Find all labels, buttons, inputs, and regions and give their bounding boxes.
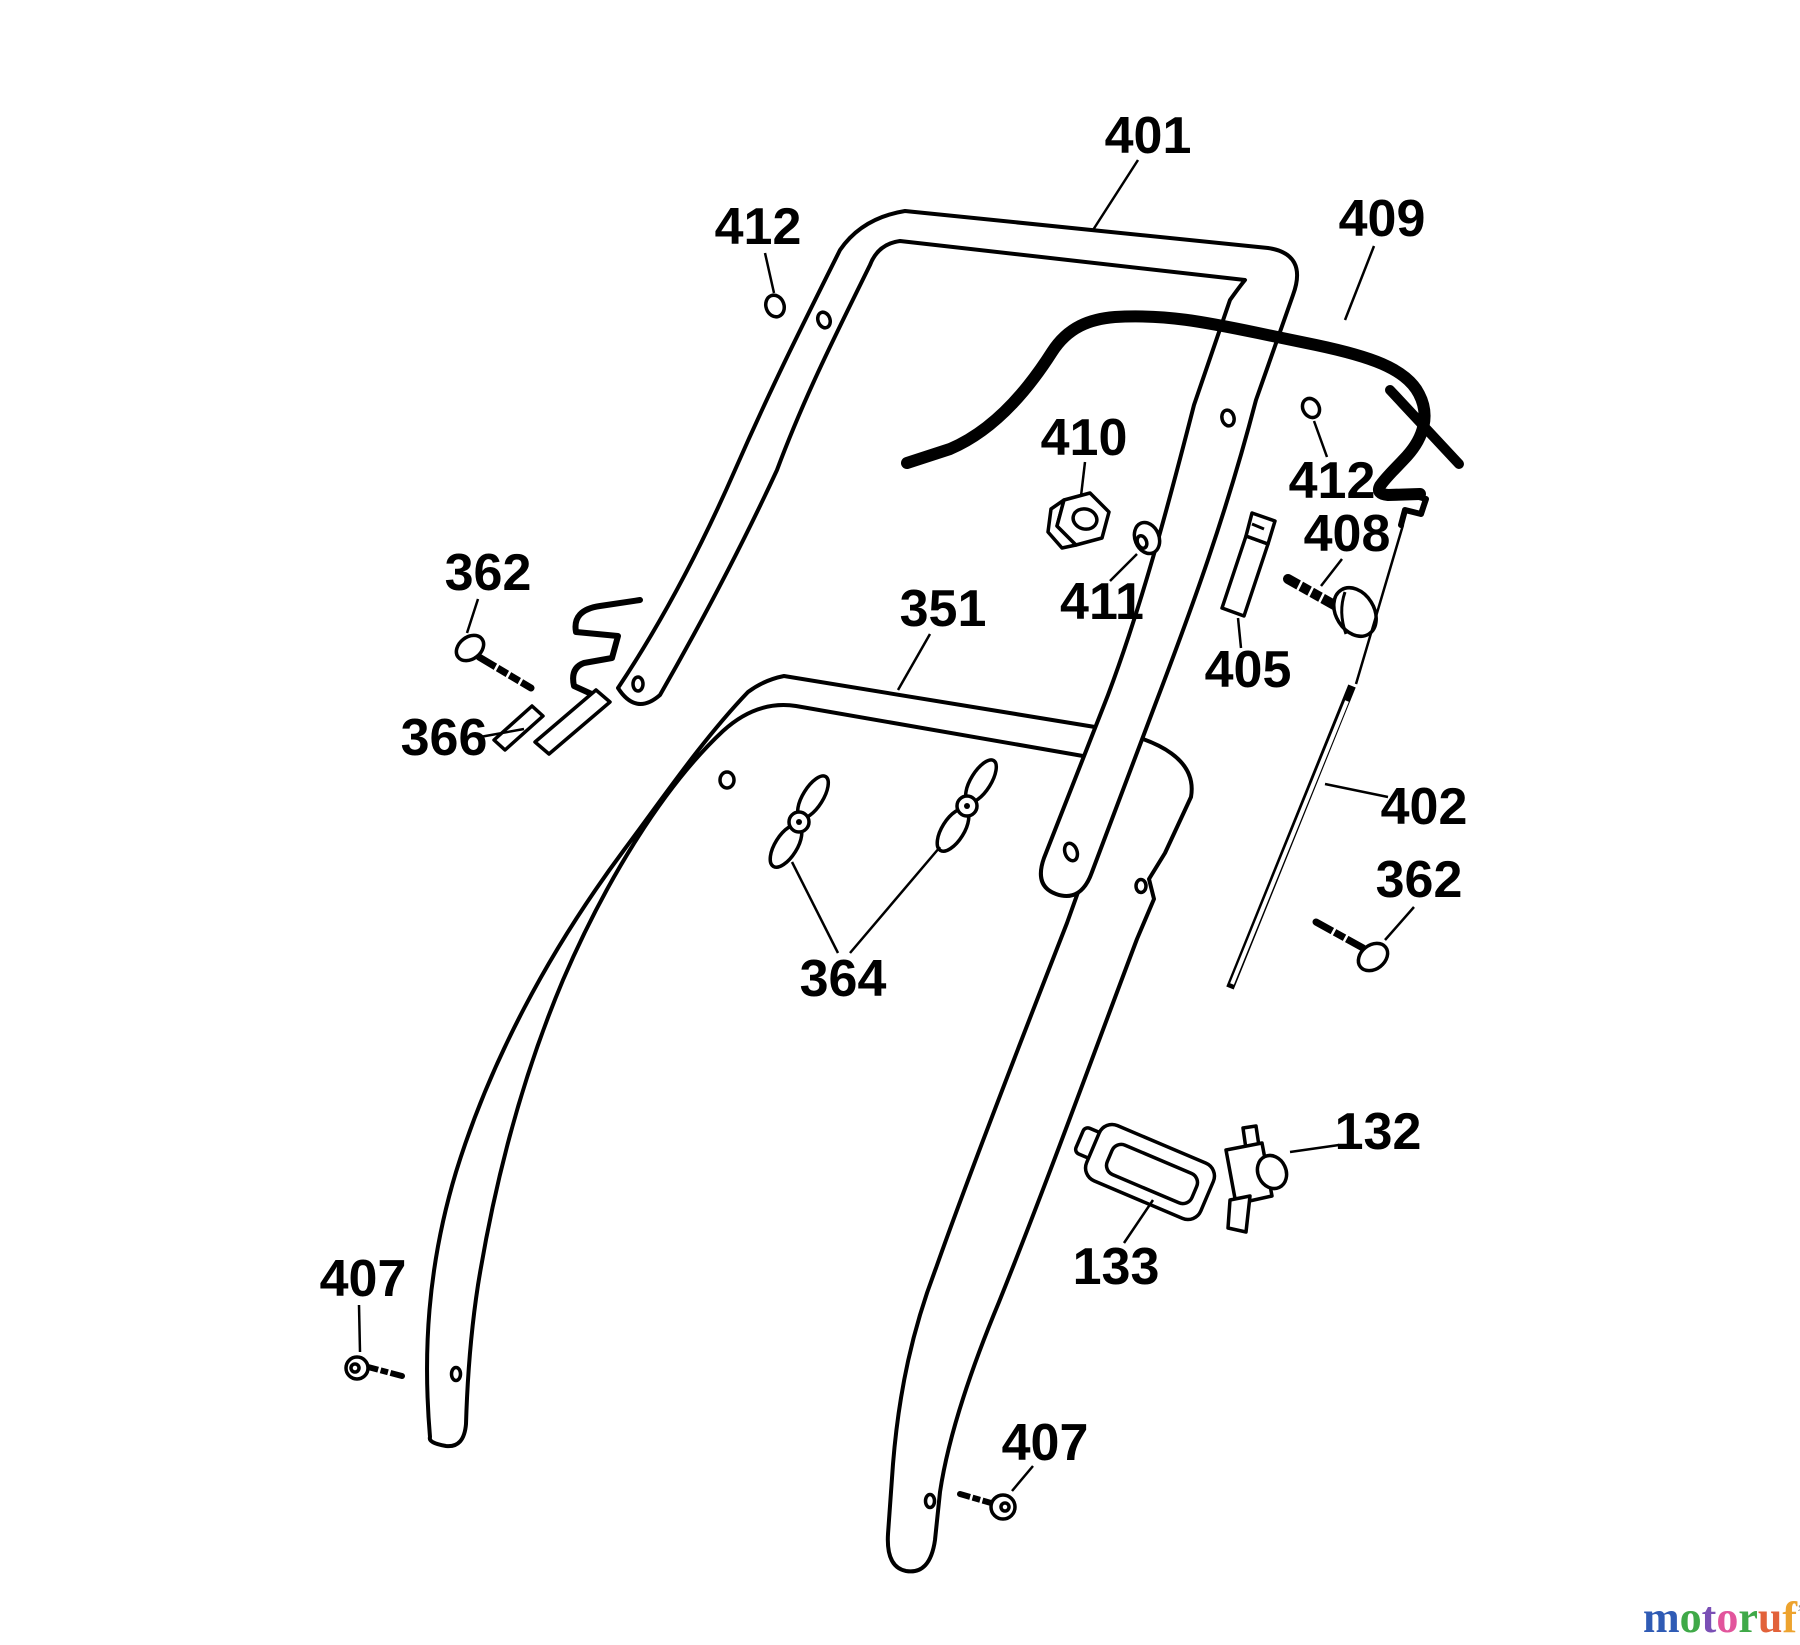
logo-letter-o1: o (1680, 1593, 1702, 1642)
part-label-362-right: 362 (1376, 851, 1463, 909)
leader-408 (1321, 559, 1342, 586)
plug-upper-left (763, 293, 787, 320)
leader-362-right (1385, 907, 1414, 940)
part-label-133: 133 (1073, 1238, 1160, 1296)
lower-handle-corner-hole (720, 772, 734, 788)
leader-133 (1124, 1200, 1153, 1243)
switch-connector (1226, 1126, 1292, 1232)
screw-right-362 (1316, 922, 1393, 976)
part-label-405: 405 (1205, 641, 1292, 699)
part-label-410: 410 (1041, 409, 1128, 467)
wing-nut-right (931, 755, 1002, 856)
lower-handle-step-hole (1136, 880, 1146, 893)
part-label-362-left: 362 (445, 544, 532, 602)
part-label-132: 132 (1335, 1103, 1422, 1161)
part-label-366: 366 (401, 709, 488, 767)
part-label-351: 351 (900, 580, 987, 638)
logo-letter-u: u (1758, 1593, 1782, 1642)
leader-351 (898, 634, 930, 690)
part-label-401: 401 (1105, 107, 1192, 165)
part-label-408: 408 (1304, 505, 1391, 563)
upper-handle-bar (618, 211, 1297, 896)
leader-407-left (359, 1305, 360, 1352)
part-label-364: 364 (800, 950, 887, 1008)
leader-410 (1081, 462, 1085, 496)
leader-402 (1325, 784, 1388, 797)
part-label-411: 411 (1060, 573, 1144, 631)
logo-letter-f: f (1782, 1593, 1798, 1642)
leader-409 (1345, 246, 1374, 320)
flange-nut (1048, 493, 1109, 548)
part-label-409: 409 (1339, 190, 1426, 248)
leader-401 (1093, 160, 1138, 230)
lower-handle-right-hole (926, 1495, 935, 1508)
logo-letter-o2: o (1716, 1593, 1738, 1642)
leader-364-left (792, 862, 838, 953)
cable-clip (1222, 513, 1275, 616)
wing-nut-left (764, 771, 834, 872)
part-label-412-left: 412 (715, 198, 802, 256)
plug-upper-right (1299, 395, 1323, 420)
leader-412-left (765, 253, 774, 293)
logo-letter-r: r (1738, 1593, 1758, 1642)
motoruf-logo: motoruf’.de (1643, 1593, 1800, 1642)
part-label-407-left: 407 (320, 1250, 407, 1308)
parts-diagram: 401 412 409 410 411 412 408 405 402 351 … (0, 0, 1800, 1645)
logo-letter-m: m (1643, 1593, 1680, 1642)
part-label-412-right: 412 (1289, 452, 1376, 510)
part-label-402: 402 (1381, 778, 1468, 836)
part-label-407-right: 407 (1002, 1414, 1089, 1472)
leader-132 (1290, 1145, 1339, 1152)
screw-lower-left-407 (346, 1357, 402, 1379)
logo-letter-t: t (1702, 1593, 1717, 1642)
leader-362-left (467, 599, 478, 633)
upper-handle-left-end-hole (633, 677, 643, 691)
lower-handle-left-hole (452, 1368, 461, 1381)
leader-364-right (850, 847, 940, 953)
screw-lower-right-407 (960, 1491, 1015, 1519)
screw-left-362 (451, 630, 531, 688)
